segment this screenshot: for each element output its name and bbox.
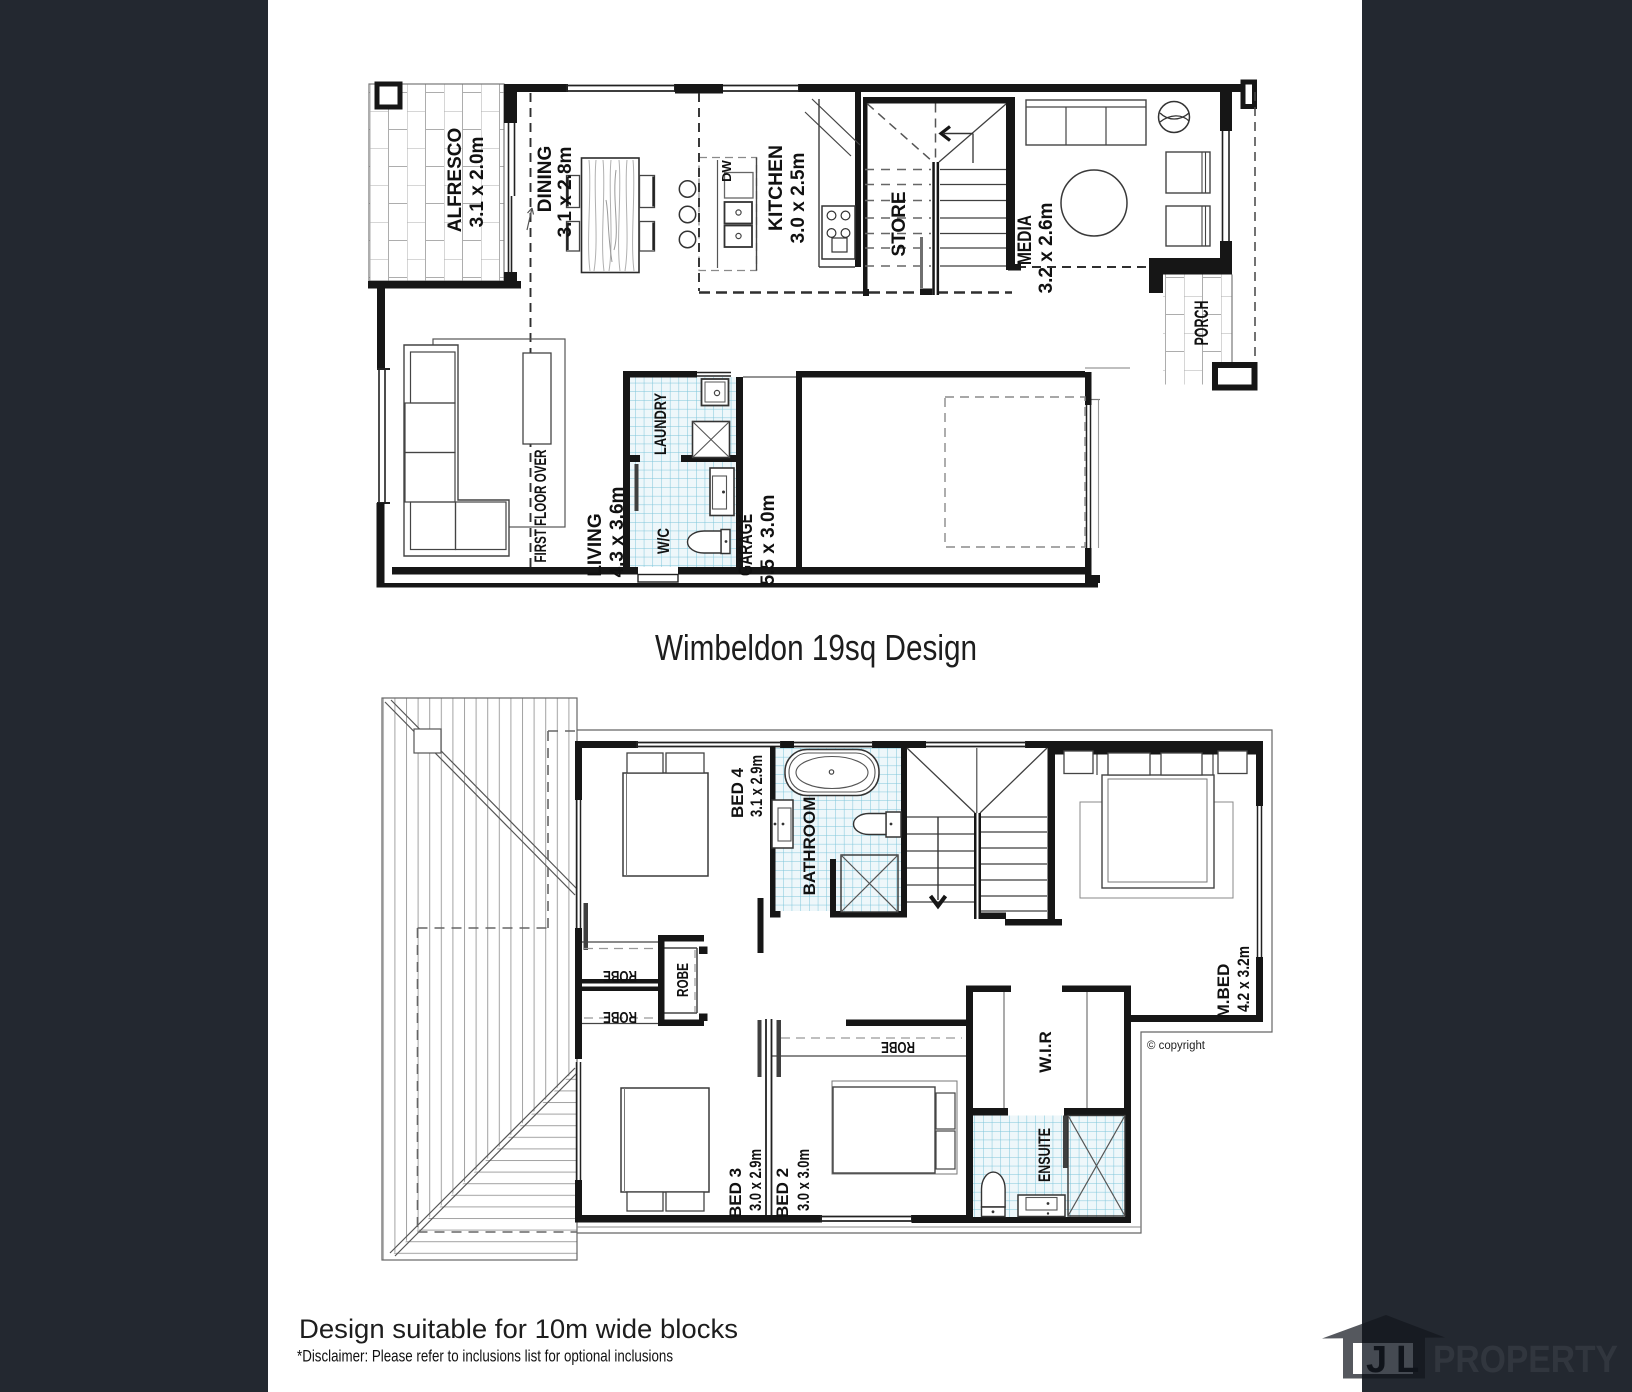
svg-text:3.0 x 3.0m: 3.0 x 3.0m xyxy=(794,1149,813,1211)
svg-text:ROBE: ROBE xyxy=(603,967,637,984)
svg-text:ROBE: ROBE xyxy=(603,1008,637,1025)
svg-text:ALFRESCO: ALFRESCO xyxy=(445,128,466,233)
svg-text:DW: DW xyxy=(719,159,734,181)
svg-text:STORE: STORE xyxy=(889,191,910,256)
svg-text:LAUNDRY: LAUNDRY xyxy=(651,393,670,455)
svg-text:Design suitable for 10m wide b: Design suitable for 10m wide blocks xyxy=(299,1314,738,1344)
svg-text:3.1 x 2.8m: 3.1 x 2.8m xyxy=(555,147,576,238)
svg-text:W.I.R: W.I.R xyxy=(1036,1031,1055,1073)
svg-text:BED 2: BED 2 xyxy=(773,1168,792,1218)
svg-text:BED 3: BED 3 xyxy=(726,1168,745,1218)
svg-text:3.2 x 2.6m: 3.2 x 2.6m xyxy=(1036,203,1057,294)
svg-text:5.5 x 3.0m: 5.5 x 3.0m xyxy=(758,495,779,586)
svg-text:3.1 x 2.9m: 3.1 x 2.9m xyxy=(747,755,766,817)
svg-text:ROBE: ROBE xyxy=(675,963,692,997)
svg-text:FIRST FLOOR OVER: FIRST FLOOR OVER xyxy=(531,450,550,563)
svg-text:MEDIA: MEDIA xyxy=(1015,215,1036,265)
svg-text:BED 4: BED 4 xyxy=(728,767,747,818)
svg-text:PORCH: PORCH xyxy=(1192,301,1213,346)
svg-text:3.0 x 2.5m: 3.0 x 2.5m xyxy=(788,153,809,244)
svg-text:LIVING: LIVING xyxy=(585,513,606,576)
svg-text:3.1 x 2.0m: 3.1 x 2.0m xyxy=(467,137,488,228)
svg-text:PROPERTY: PROPERTY xyxy=(1433,1339,1618,1381)
svg-text:*Disclaimer: Please refer to i: *Disclaimer: Please refer to inclusions … xyxy=(297,1348,673,1366)
svg-text:W/C: W/C xyxy=(654,528,673,554)
svg-text:ROBE: ROBE xyxy=(881,1038,915,1055)
svg-text:GARAGE: GARAGE xyxy=(736,514,757,576)
svg-text:KITCHEN: KITCHEN xyxy=(766,145,787,231)
svg-text:ENSUITE: ENSUITE xyxy=(1035,1128,1054,1182)
svg-text:DINING: DINING xyxy=(535,146,556,213)
svg-text:L: L xyxy=(1396,1339,1419,1381)
svg-text:4.2 x 3.2m: 4.2 x 3.2m xyxy=(1234,946,1253,1012)
svg-text:Wimbeldon 19sq Design: Wimbeldon 19sq Design xyxy=(655,627,977,668)
svg-text:3.0 x 2.9m: 3.0 x 2.9m xyxy=(746,1149,765,1211)
svg-text:© copyright: © copyright xyxy=(1147,1040,1206,1052)
svg-text:4.3 x 3.6m: 4.3 x 3.6m xyxy=(607,487,628,578)
svg-text:J: J xyxy=(1366,1339,1387,1381)
svg-text:BATHROOM: BATHROOM xyxy=(800,797,819,896)
svg-text:M.BED: M.BED xyxy=(1214,964,1233,1019)
